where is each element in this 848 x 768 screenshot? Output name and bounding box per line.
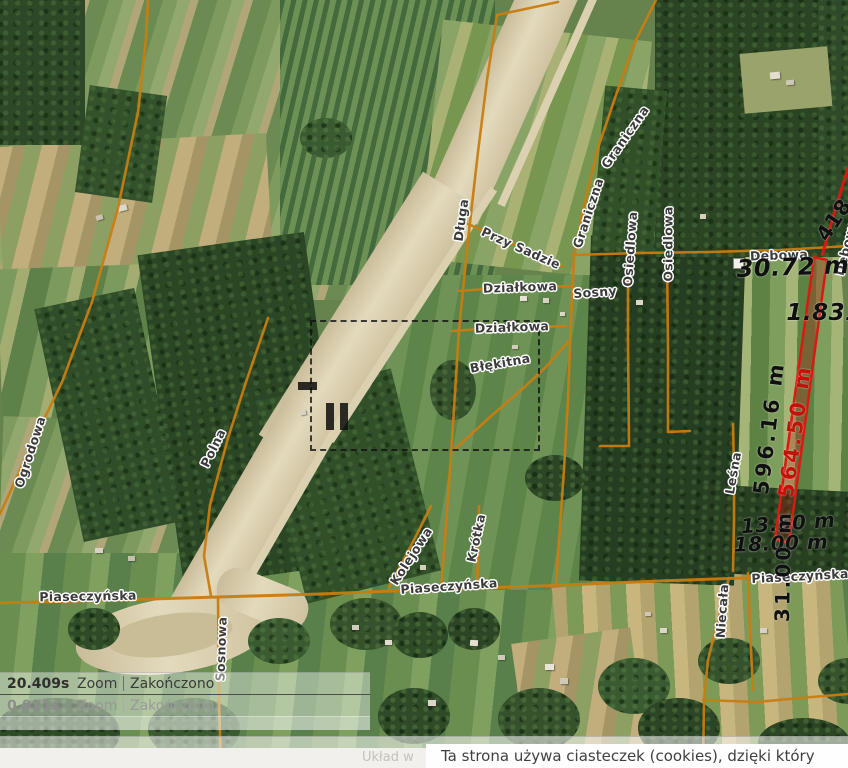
timing-action: Zoom xyxy=(77,698,121,714)
selection-handle xyxy=(326,403,334,430)
tree-cluster xyxy=(392,612,448,658)
building xyxy=(520,296,527,301)
timing-duration: 0.921s xyxy=(0,698,73,714)
building xyxy=(560,678,568,684)
building xyxy=(352,625,359,630)
selection-rectangle xyxy=(310,320,540,451)
selection-handle xyxy=(298,382,317,390)
terrain-patch xyxy=(75,85,167,203)
building xyxy=(95,548,103,553)
timing-status: Zakończono xyxy=(130,698,214,714)
divider xyxy=(123,698,124,713)
timing-action: Zoom xyxy=(77,676,121,692)
timing-row: 20.409s Zoom Zakończono xyxy=(0,673,370,694)
building xyxy=(543,298,549,303)
building xyxy=(300,410,307,416)
building xyxy=(645,612,651,616)
tree-cluster xyxy=(248,618,310,664)
building xyxy=(786,80,794,86)
tree-cluster xyxy=(525,455,585,501)
tree-cluster xyxy=(68,608,120,650)
terrain-patch xyxy=(0,0,85,145)
terrain-patch xyxy=(698,484,848,580)
cookie-notice[interactable]: Ta strona używa ciasteczek (cookies), dz… xyxy=(426,744,848,768)
building xyxy=(700,214,706,219)
building xyxy=(498,655,505,660)
cookie-notice-text: Ta strona używa ciasteczek (cookies), dz… xyxy=(441,747,815,765)
building xyxy=(545,664,554,670)
building xyxy=(560,312,565,316)
building xyxy=(470,640,478,646)
timing-duration: 20.409s xyxy=(0,676,73,692)
timing-panel: 20.409s Zoom Zakończono 0.921s Zoom Zako… xyxy=(0,672,370,730)
building xyxy=(660,628,667,633)
timing-row: 0.921s Zoom Zakończono xyxy=(0,695,370,716)
divider xyxy=(123,676,124,691)
timing-status: Zakończono xyxy=(130,676,214,692)
building xyxy=(128,556,135,561)
building xyxy=(428,700,436,706)
building xyxy=(420,565,426,570)
building xyxy=(385,640,392,645)
tree-cluster xyxy=(300,118,352,158)
timing-row-ghost xyxy=(0,716,370,730)
vertex-marker xyxy=(733,258,744,269)
selection-handle xyxy=(340,403,348,430)
map-canvas[interactable]: OgrodowaPolnaPiaseczyńskaSosnowaDługaPrz… xyxy=(0,0,848,768)
tree-cluster xyxy=(698,638,760,684)
building xyxy=(636,300,643,305)
building xyxy=(770,72,781,80)
coordinate-system-label: Układ w xyxy=(362,750,414,765)
building xyxy=(760,628,767,633)
